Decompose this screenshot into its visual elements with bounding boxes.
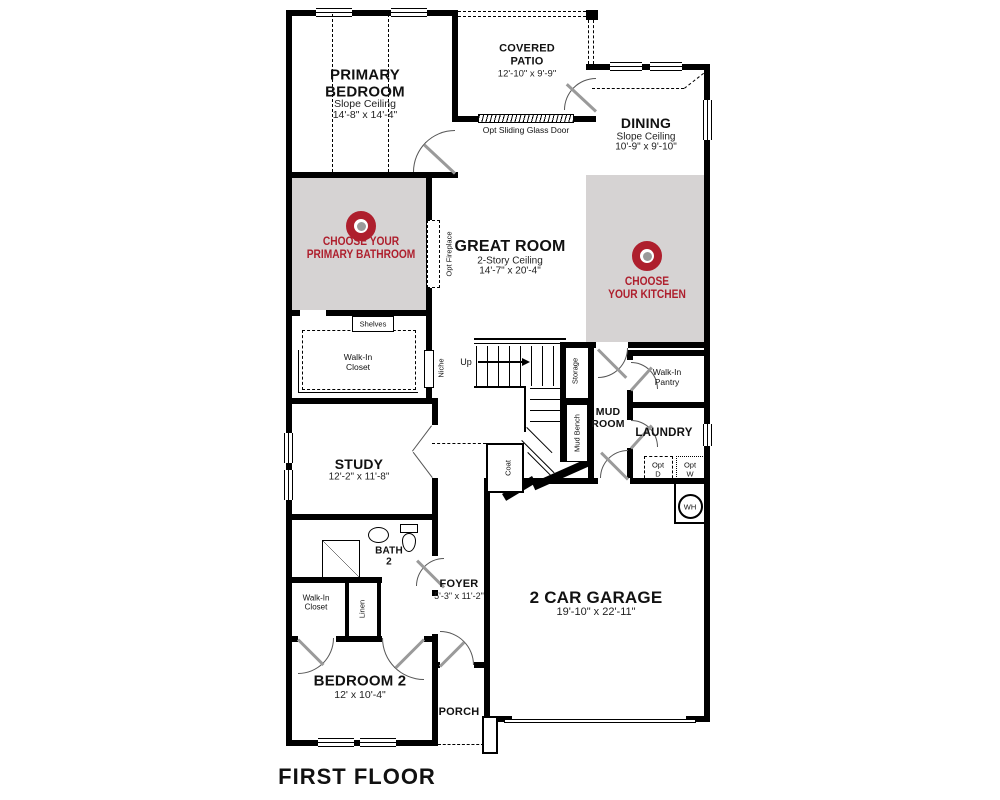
- dining-dims: 10'-9" x 9'-10": [615, 142, 677, 153]
- room-label-great-room: GREAT ROOM: [454, 238, 565, 256]
- foyer-dims: 5'-3" x 11'-2": [434, 591, 484, 601]
- porch-edge-bottom: [438, 744, 484, 745]
- wall-storage-right: [588, 342, 594, 480]
- window-dining-2: [650, 62, 682, 71]
- room-label-study: STUDY: [335, 456, 383, 472]
- label-primary-closet-1: Walk-In: [344, 352, 373, 362]
- study-dims: 12'-2" x 11'-8": [329, 472, 390, 483]
- stair-treads-upper: [476, 346, 564, 386]
- room-label-mud-room-1: MUD: [596, 406, 621, 418]
- slope-line-dining: [592, 88, 684, 89]
- room-label-bedroom2: BEDROOM 2: [314, 673, 407, 690]
- wall-closet2-right: [345, 583, 349, 636]
- patio-edge-right-a: [588, 20, 589, 64]
- wall-patio-bottom-right: [574, 116, 596, 122]
- target-icon-kitchen: [632, 241, 662, 271]
- room-label-garage: 2 CAR GARAGE: [530, 588, 663, 608]
- wall-patio-bottom-left: [452, 116, 478, 122]
- primary-bedroom-dims: 14'-8" x 14'-4": [333, 109, 398, 121]
- stair-rail-top-a: [474, 338, 566, 340]
- label-opt-dryer-1: Opt: [652, 461, 664, 470]
- room-label-laundry: LAUNDRY: [635, 427, 692, 439]
- wh-nook-wall-h: [674, 522, 706, 524]
- window-study-1: [284, 433, 293, 463]
- wall-pantry-laundry: [627, 402, 710, 408]
- sliding-glass-door: [478, 114, 574, 123]
- closet-rod-line-v: [298, 350, 299, 392]
- wall-closet-bottom: [286, 398, 438, 404]
- wall-bedroom-top: [286, 10, 458, 16]
- wall-bedroom-right: [452, 10, 458, 120]
- wall-linen-right: [377, 583, 381, 636]
- sink: [368, 527, 389, 543]
- label-mud-bench: Mud Bench: [573, 414, 582, 452]
- wall-dining-top: [586, 64, 710, 70]
- stair-tread-diag-2: [521, 440, 554, 473]
- stair-up-arrowhead: [522, 358, 530, 366]
- label-shelves: Shelves: [360, 320, 387, 329]
- patio-edge-top-b: [458, 16, 586, 17]
- toilet-bowl: [402, 533, 416, 552]
- garage-door-panel: [504, 719, 696, 723]
- porch-column: [482, 716, 498, 754]
- room-label-bath2-1: BATH: [375, 546, 403, 557]
- wall-understair-diagonal: [532, 458, 591, 490]
- target-dot-icon: [357, 222, 366, 231]
- window-laundry: [703, 424, 712, 446]
- label-bedroom2-closet-2: Closet: [305, 603, 328, 612]
- page-title: FIRST FLOOR: [278, 764, 436, 790]
- room-label-covered-patio: COVERED PATIO: [487, 42, 567, 67]
- stair-rail-top-b: [474, 343, 566, 344]
- opening-hall: [432, 596, 438, 634]
- wh-nook-wall-v: [674, 484, 676, 524]
- stair-up-arrow-line: [478, 361, 524, 363]
- room-label-pantry-2: Pantry: [655, 377, 680, 387]
- room-label-primary-bedroom: PRIMARY BEDROOM: [300, 68, 430, 101]
- label-opt-fireplace: Opt Fireplace: [445, 231, 454, 276]
- room-label-mud-room-2: ROOM: [591, 418, 624, 430]
- label-storage: Storage: [571, 358, 580, 384]
- covered-patio-dims: 12'-10" x 9'-9": [498, 69, 556, 80]
- floor-plan: PRIMARY BEDROOM Slope Ceiling 14'-8" x 1…: [0, 0, 1000, 800]
- great-room-dims: 14'-7" x 20'-4": [479, 266, 541, 277]
- shower: [322, 540, 360, 578]
- room-label-bath2-2: 2: [386, 557, 392, 568]
- target-dot-icon: [643, 252, 652, 261]
- wall-pantry-top: [627, 350, 710, 356]
- room-label-foyer: FOYER: [440, 578, 479, 590]
- wall-patio-corner-post: [586, 10, 598, 20]
- badge-primary-bathroom-line1: CHOOSE YOUR: [323, 234, 399, 248]
- label-niche: Niche: [437, 358, 446, 377]
- wall-exterior-right: [704, 64, 710, 722]
- label-bedroom2-closet-1: Walk-In: [303, 594, 330, 603]
- wall-study-bottom: [286, 514, 438, 520]
- niche-box: [424, 350, 434, 388]
- room-label-porch: PORCH: [439, 706, 480, 718]
- window-bedroom2-2: [360, 738, 396, 747]
- window-study-2: [284, 470, 293, 500]
- wall-kitchen-mud: [560, 342, 710, 348]
- garage-dims: 19'-10" x 22'-11": [556, 606, 635, 618]
- opening-bath-closet: [300, 310, 326, 316]
- wall-bedroom-bath: [286, 172, 458, 178]
- window-dining-1: [610, 62, 642, 71]
- label-opt-sliding-door: Opt Sliding Glass Door: [483, 125, 569, 135]
- toilet-tank: [400, 524, 418, 533]
- room-label-pantry-1: Walk-In: [653, 367, 682, 377]
- label-linen: Linen: [358, 600, 367, 618]
- label-opt-washer-2: W: [686, 470, 693, 479]
- window-bedroom2-1: [318, 738, 354, 747]
- opening-study-doors: [432, 425, 438, 478]
- greatroom-foyer-line: [432, 443, 486, 444]
- window-bedroom-2: [391, 8, 427, 17]
- badge-kitchen-line2: YOUR KITCHEN: [608, 287, 686, 301]
- label-coat: Coat: [504, 460, 513, 476]
- window-bedroom-1: [316, 8, 352, 17]
- stair-rail-mid-v: [524, 388, 526, 432]
- label-up: Up: [460, 357, 472, 367]
- study-door-leaf-2: [413, 452, 433, 478]
- stair-rail-mid-h: [474, 386, 526, 388]
- closet-rod-line-h: [298, 392, 418, 393]
- badge-kitchen-line1: CHOOSE: [625, 274, 669, 288]
- label-water-heater: WH: [684, 503, 697, 512]
- study-door-leaf-1: [412, 425, 432, 451]
- label-opt-dryer-2: D: [655, 470, 660, 479]
- stair-treads-lower: [530, 388, 564, 432]
- patio-edge-right-b: [593, 20, 594, 64]
- room-label-dining: DINING: [621, 115, 671, 131]
- wall-garage-left: [484, 478, 490, 718]
- badge-primary-bathroom-line2: PRIMARY BATHROOM: [307, 247, 416, 261]
- opt-fireplace-box: [427, 220, 440, 288]
- patio-edge-top-a: [458, 11, 586, 12]
- bedroom2-dims: 12' x 10'-4": [334, 689, 386, 701]
- window-dining-right: [703, 100, 712, 140]
- label-opt-washer-1: Opt: [684, 461, 696, 470]
- label-primary-closet-2: Closet: [346, 362, 370, 372]
